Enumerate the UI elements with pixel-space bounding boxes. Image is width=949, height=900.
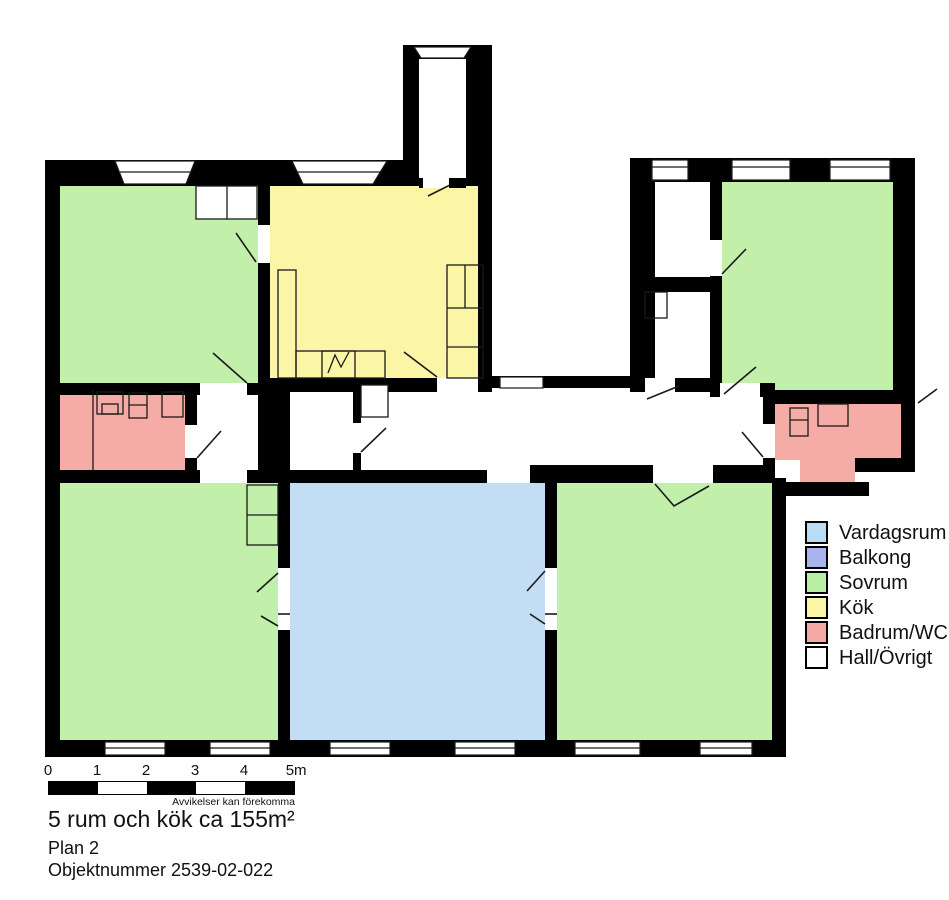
scale-tick-2: 2 [142,762,150,779]
room-sovrum-bottom-left [60,483,278,740]
legend-label: Badrum/WC [839,623,948,643]
legend-label: Balkong [839,548,911,568]
legend-swatch-vardagsrum [805,521,828,544]
scale-tick-1: 1 [93,762,101,779]
legend-label: Vardagsrum [839,523,946,543]
scale-bar-strip [48,781,295,795]
room-vardagsrum [290,483,545,740]
room-badrum-right [775,404,901,460]
legend-item-balkong: Balkong [805,547,948,568]
scale-bar: 0 1 2 3 4 5m Avvikelser kan förekomma [48,762,294,808]
room-closet-upper-right-1 [655,182,710,277]
legend-item-hall: Hall/Övrigt [805,647,948,668]
floor-label: Plan 2 [48,838,99,859]
scale-tick-4: 4 [240,762,248,779]
legend-item-vardagsrum: Vardagsrum [805,522,948,543]
scale-tick-3: 3 [191,762,199,779]
legend-label: Sovrum [839,573,908,593]
room-stairwell-protrusion [419,59,466,178]
legend-swatch-sovrum [805,571,828,594]
floorplan-page: Vardagsrum Balkong Sovrum Kök Badrum/WC … [0,0,949,900]
legend-swatch-kok [805,596,828,619]
legend: Vardagsrum Balkong Sovrum Kök Badrum/WC … [805,522,948,668]
legend-swatch-hall [805,646,828,669]
room-sovrum-top-right [722,182,893,390]
legend-label: Hall/Övrigt [839,648,932,668]
legend-swatch-badrum [805,621,828,644]
apartment-title: 5 rum och kök ca 155m² [48,806,295,833]
room-sovrum-bottom-right [557,480,772,740]
legend-item-sovrum: Sovrum [805,572,948,593]
scale-tick-5: 5m [286,762,307,779]
legend-label: Kök [839,598,873,618]
scale-tick-0: 0 [44,762,52,779]
legend-item-badrum: Badrum/WC [805,622,948,643]
room-badrum-right-tab [800,455,855,482]
legend-swatch-balkong [805,546,828,569]
hall-closet [361,385,388,417]
object-number: Objektnummer 2539-02-022 [48,860,273,881]
legend-item-kok: Kök [805,597,948,618]
